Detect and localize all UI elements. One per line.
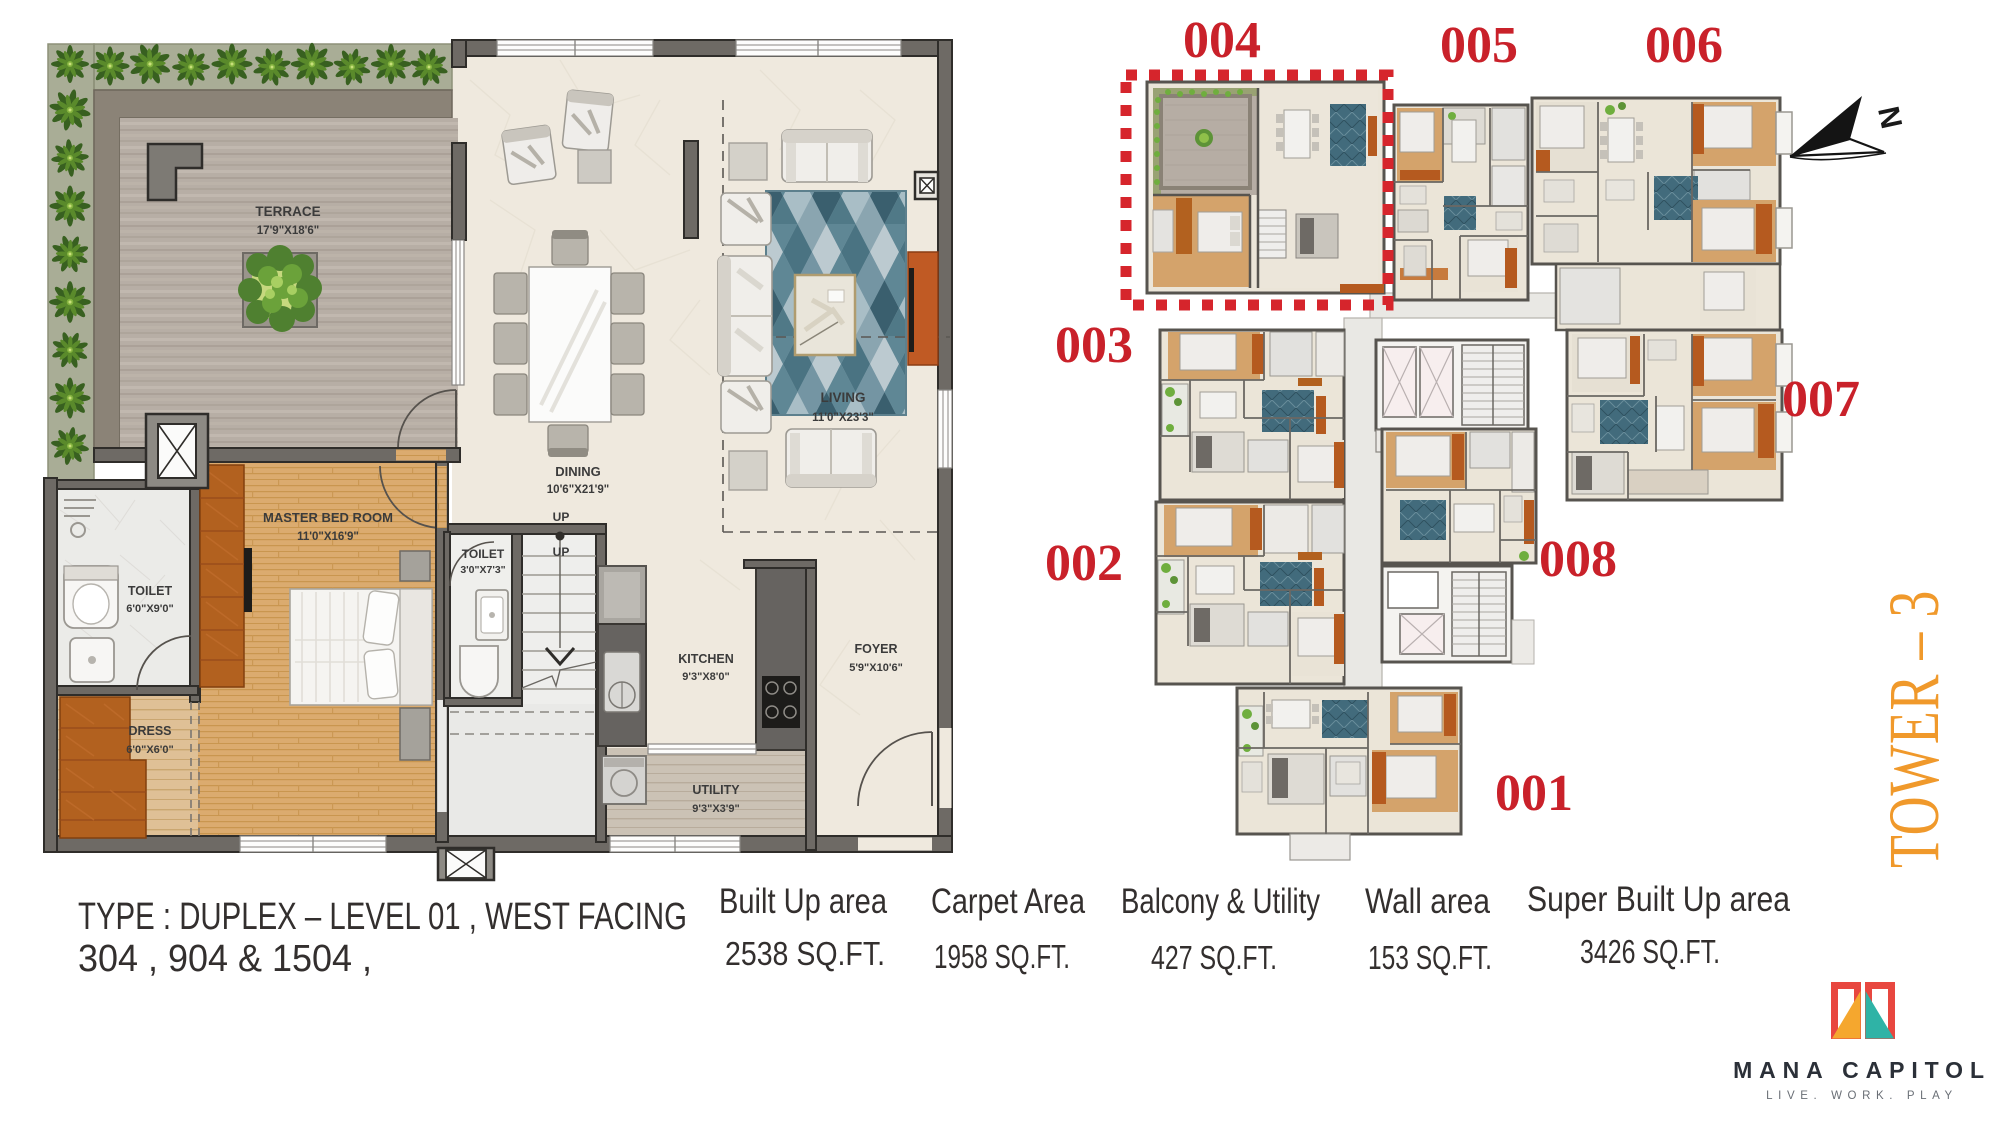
svg-text:004: 004 <box>1183 12 1261 69</box>
svg-text:11'0"X23'3": 11'0"X23'3" <box>812 412 874 424</box>
svg-text:9'3"X3'9": 9'3"X3'9" <box>692 803 739 815</box>
svg-text:427 SQ.FT.: 427 SQ.FT. <box>1151 939 1277 976</box>
svg-text:TOILET: TOILET <box>128 584 173 598</box>
svg-text:3426 SQ.FT.: 3426 SQ.FT. <box>1580 933 1720 970</box>
svg-text:TERRACE: TERRACE <box>255 204 320 219</box>
svg-text:008: 008 <box>1539 531 1617 588</box>
svg-text:TYPE : DUPLEX – LEVEL 01 , WE: TYPE : DUPLEX – LEVEL 01 , WEST FACING <box>78 896 687 938</box>
svg-text:UTILITY: UTILITY <box>692 783 740 797</box>
svg-text:LIVE. WORK. PLAY: LIVE. WORK. PLAY <box>1766 1090 1958 1102</box>
svg-text:2538 SQ.FT.: 2538 SQ.FT. <box>725 935 885 972</box>
svg-text:LIVING: LIVING <box>820 390 865 405</box>
svg-text:6'0"X9'0": 6'0"X9'0" <box>126 603 173 615</box>
svg-text:10'6"X21'9": 10'6"X21'9" <box>547 484 609 496</box>
svg-text:Wall area: Wall area <box>1365 882 1490 921</box>
svg-text:007: 007 <box>1782 371 1860 428</box>
svg-text:TOILET: TOILET <box>462 547 505 561</box>
svg-text:9'3"X8'0": 9'3"X8'0" <box>682 671 729 683</box>
svg-text:KITCHEN: KITCHEN <box>678 652 734 666</box>
svg-text:3'0"X7'3": 3'0"X7'3" <box>460 564 505 576</box>
svg-text:FOYER: FOYER <box>854 642 897 656</box>
svg-text:MASTER BED ROOM: MASTER BED ROOM <box>263 510 393 525</box>
svg-text:005: 005 <box>1440 17 1518 74</box>
svg-text:003: 003 <box>1055 317 1133 374</box>
svg-text:002: 002 <box>1045 535 1123 592</box>
svg-text:5'9"X10'6": 5'9"X10'6" <box>849 662 903 674</box>
svg-text:Carpet Area: Carpet Area <box>931 882 1085 921</box>
svg-text:DRESS: DRESS <box>128 724 171 738</box>
svg-text:006: 006 <box>1645 17 1723 74</box>
svg-text:11'0"X16'9": 11'0"X16'9" <box>297 531 359 543</box>
svg-text:304 , 904 & 1504 ,: 304 , 904 & 1504 , <box>78 938 372 980</box>
svg-text:153 SQ.FT.: 153 SQ.FT. <box>1368 939 1492 976</box>
svg-text:TOWER – 3: TOWER – 3 <box>1874 590 1954 868</box>
svg-text:Balcony & Utility: Balcony & Utility <box>1121 882 1320 921</box>
svg-text:UP: UP <box>553 510 570 524</box>
svg-text:DINING: DINING <box>555 464 601 479</box>
svg-text:UP: UP <box>553 545 570 559</box>
svg-text:MANA CAPITOL: MANA CAPITOL <box>1733 1057 1991 1083</box>
svg-text:17'9"X18'6": 17'9"X18'6" <box>257 225 319 237</box>
svg-text:6'0"X6'0": 6'0"X6'0" <box>126 744 173 756</box>
svg-text:1958 SQ.FT.: 1958 SQ.FT. <box>934 938 1070 975</box>
svg-text:001: 001 <box>1495 765 1573 822</box>
svg-text:Super Built Up area: Super Built Up area <box>1527 880 1790 919</box>
svg-text:Built Up area: Built Up area <box>719 882 887 921</box>
